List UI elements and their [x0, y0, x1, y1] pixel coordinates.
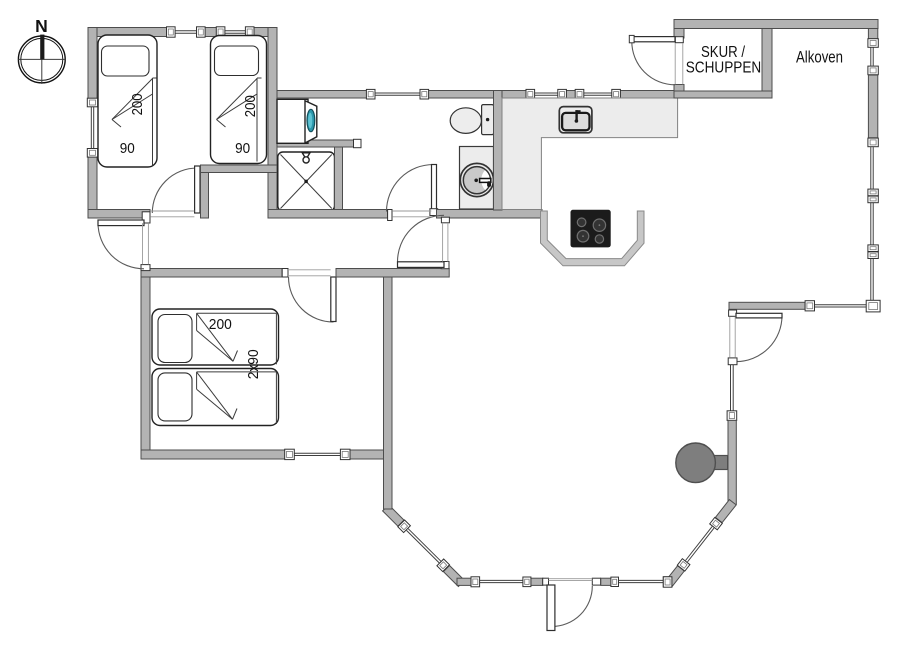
svg-text:N: N — [35, 16, 48, 36]
svg-text:Alkoven: Alkoven — [796, 48, 843, 67]
svg-text:SCHUPPEN: SCHUPPEN — [686, 59, 762, 76]
svg-text:200: 200 — [129, 93, 146, 115]
svg-text:90: 90 — [235, 140, 250, 157]
svg-text:90: 90 — [120, 140, 135, 157]
svg-text:2x90: 2x90 — [245, 349, 262, 379]
svg-text:200: 200 — [242, 95, 259, 117]
svg-text:200: 200 — [209, 316, 232, 333]
